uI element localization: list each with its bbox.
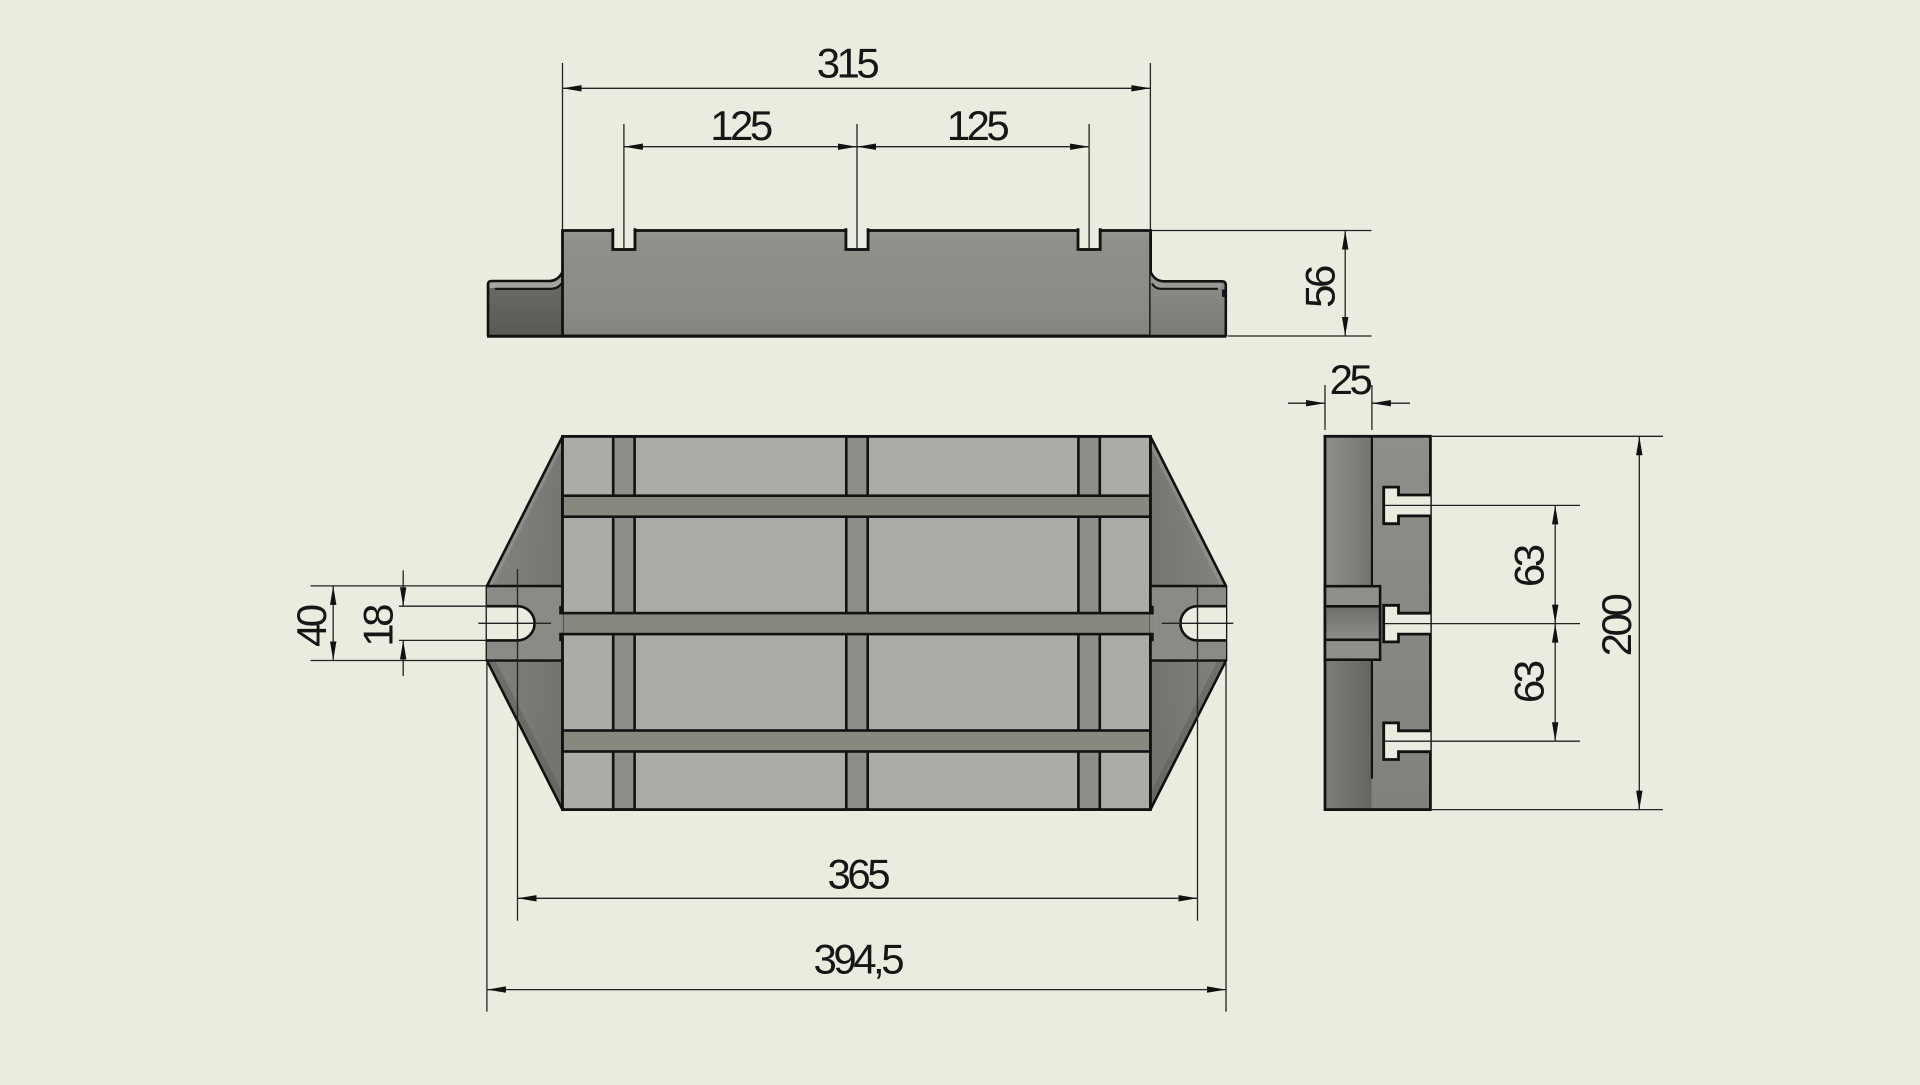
svg-text:56: 56 (1297, 266, 1344, 308)
svg-text:63: 63 (1505, 545, 1552, 587)
svg-text:200: 200 (1593, 595, 1640, 657)
svg-text:18: 18 (355, 605, 402, 647)
svg-text:125: 125 (947, 102, 1009, 149)
svg-text:25: 25 (1330, 356, 1372, 403)
svg-text:315: 315 (817, 40, 879, 87)
svg-text:394,5: 394,5 (813, 935, 903, 982)
svg-text:63: 63 (1505, 661, 1552, 703)
svg-text:125: 125 (710, 102, 772, 149)
svg-text:365: 365 (828, 851, 890, 898)
svg-text:40: 40 (288, 605, 335, 647)
